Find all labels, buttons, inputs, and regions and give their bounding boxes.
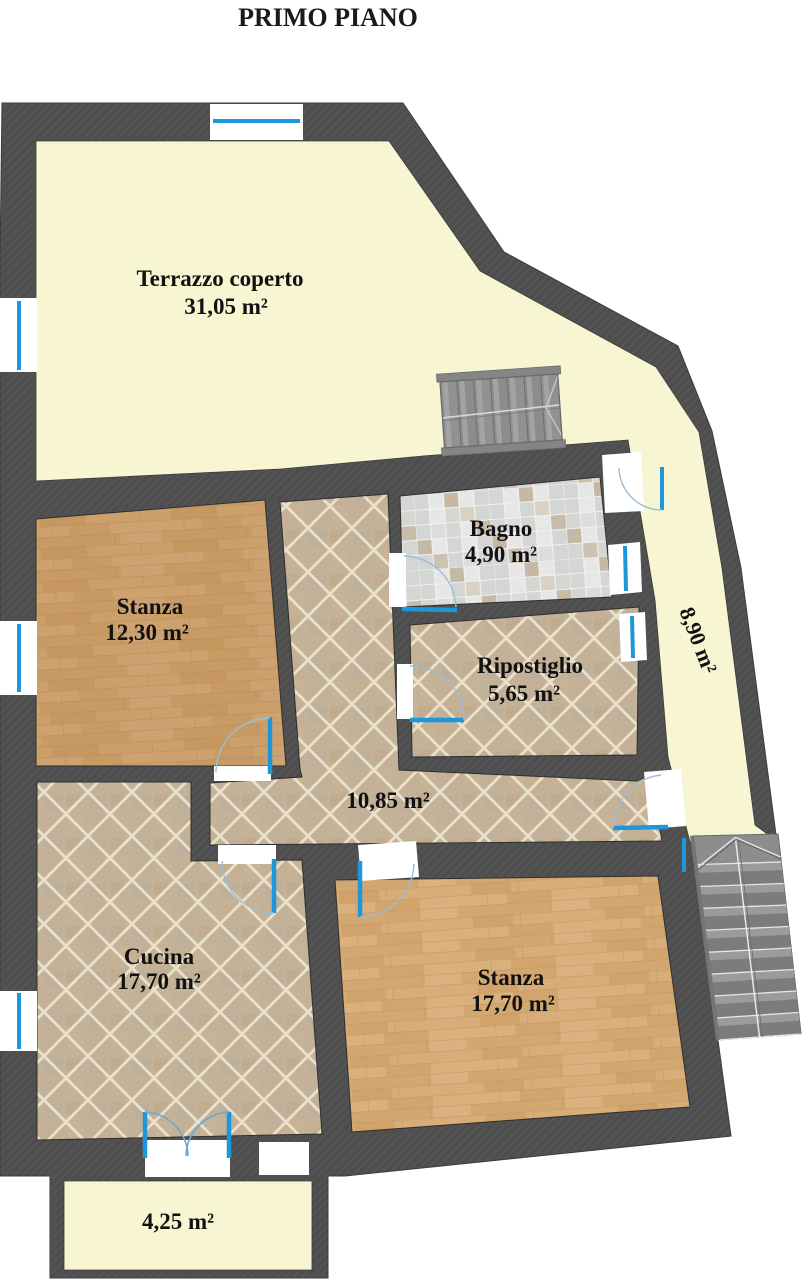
svg-text:Terrazzo coperto: Terrazzo coperto <box>136 266 303 291</box>
svg-text:Stanza: Stanza <box>117 594 184 619</box>
svg-text:17,70 m²: 17,70 m² <box>117 969 201 994</box>
svg-text:31,05 m²: 31,05 m² <box>184 294 268 319</box>
svg-text:10,85 m²: 10,85 m² <box>346 788 430 813</box>
svg-text:Bagno: Bagno <box>470 516 533 541</box>
svg-text:4,25 m²: 4,25 m² <box>142 1209 214 1234</box>
svg-text:PRIMO PIANO: PRIMO PIANO <box>238 3 418 32</box>
svg-text:5,65 m²: 5,65 m² <box>488 681 560 706</box>
svg-text:Cucina: Cucina <box>124 944 195 969</box>
svg-text:12,30 m²: 12,30 m² <box>105 620 189 645</box>
svg-text:Stanza: Stanza <box>478 965 545 990</box>
svg-text:4,90 m²: 4,90 m² <box>465 542 537 567</box>
svg-text:Ripostiglio: Ripostiglio <box>477 653 583 678</box>
svg-text:17,70 m²: 17,70 m² <box>471 991 555 1016</box>
